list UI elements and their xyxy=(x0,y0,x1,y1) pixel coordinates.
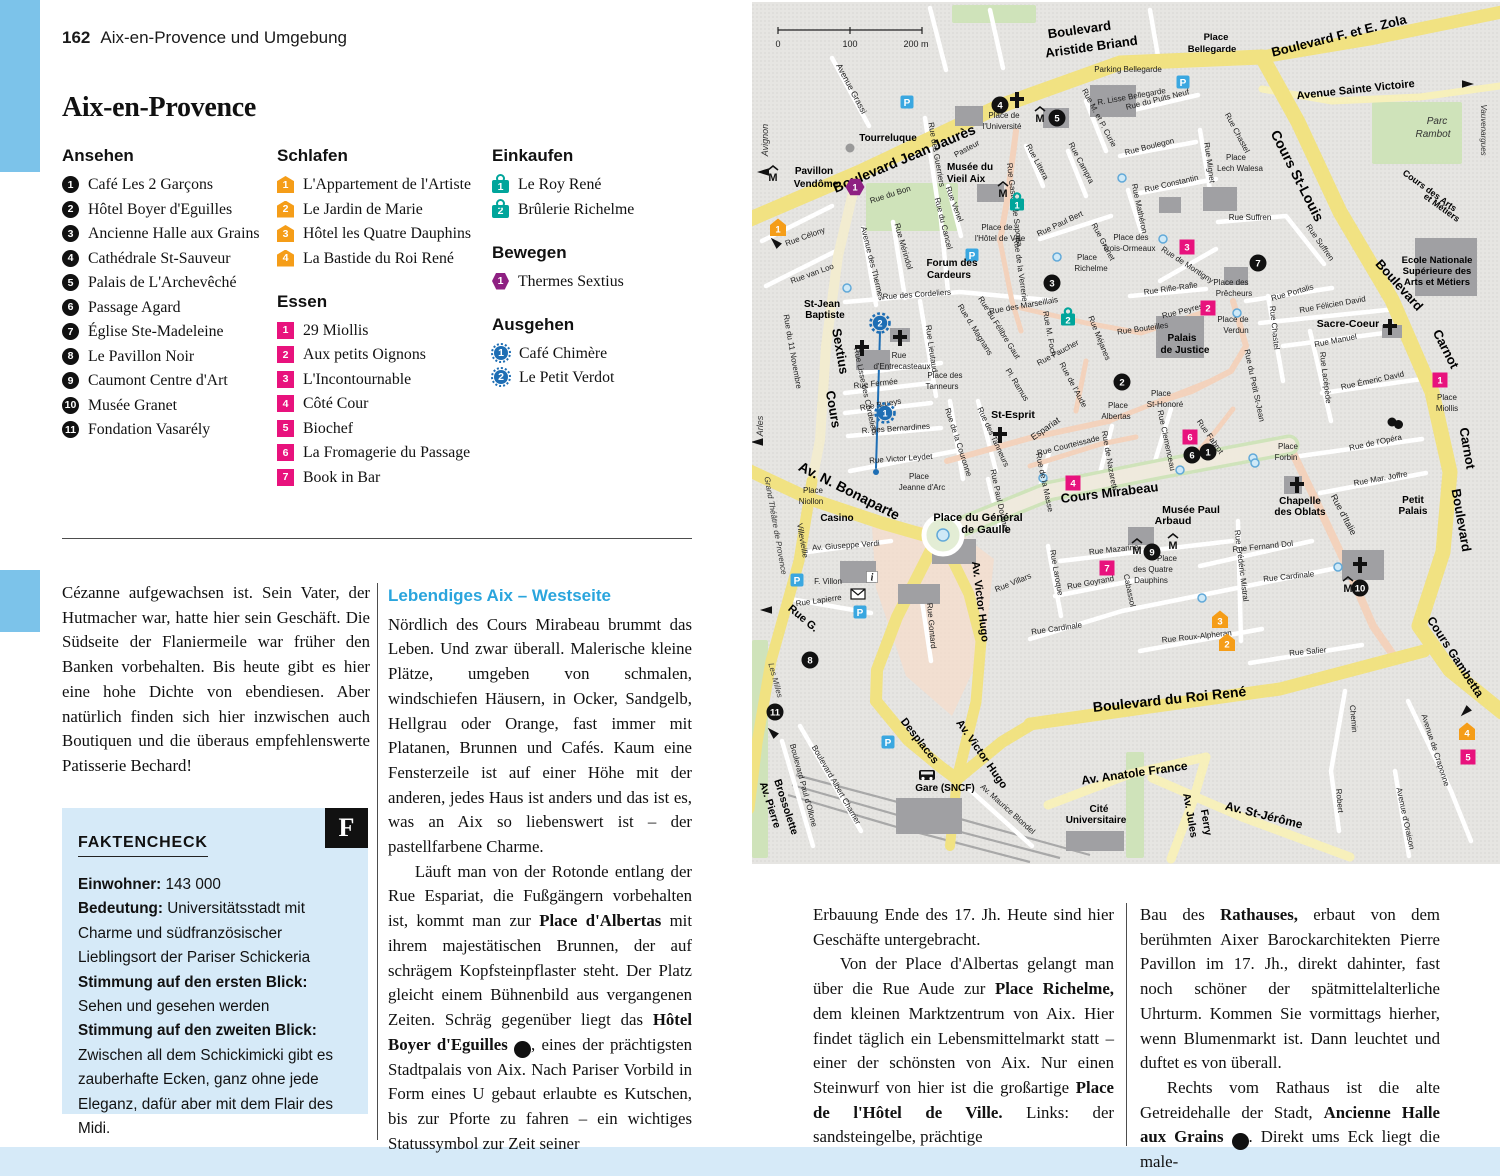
divider-vertical-2 xyxy=(1126,903,1127,1146)
legend-label: L'Incontournable xyxy=(303,370,411,389)
legend-label: Aux petits Oignons xyxy=(303,345,426,364)
legend-marker-sight-11: 11 xyxy=(62,421,79,438)
page-header-title: Aix-en-Provence und Umgebung xyxy=(100,28,347,47)
map-marker-sight-11: 11 xyxy=(767,704,784,721)
legend-marker-sight-6: 6 xyxy=(62,299,79,316)
map-marker-food-6: 6 xyxy=(1183,430,1198,445)
legend-marker-food-3: 3 xyxy=(277,371,294,388)
map-street-label: Place xyxy=(1226,153,1247,162)
legend-heading-essen: Essen xyxy=(277,292,487,312)
legend-label: Café Chimère xyxy=(519,344,607,363)
map-street-label: St-Esprit xyxy=(991,409,1035,421)
legend-marker-sight-1: 1 xyxy=(62,176,79,193)
svg-text:M: M xyxy=(998,188,1007,200)
svg-text:7: 7 xyxy=(1104,563,1109,574)
svg-text:P: P xyxy=(857,608,864,619)
map-street-label: Jeanne d'Arc xyxy=(899,483,945,492)
legend-label: Café Les 2 Garçons xyxy=(88,175,213,194)
map-marker-sight-3: 3 xyxy=(1044,275,1061,292)
map-street-label: Tourreluque xyxy=(859,133,917,144)
map-street-label: Arles xyxy=(755,415,765,437)
text-column-bottom-right: Bau des Rathauses, erbaut von dem berühm… xyxy=(1140,903,1440,1175)
svg-text:M: M xyxy=(768,172,777,184)
svg-text:3: 3 xyxy=(1184,242,1189,253)
map-dot-icon xyxy=(846,144,855,153)
legend-heading-bewegen: Bewegen xyxy=(492,243,697,263)
legend-label: Biochef xyxy=(303,419,353,438)
map-street-label: Vieil Aix xyxy=(947,174,986,185)
legend-item: 1Thermes Sextius xyxy=(492,272,697,291)
map-street-label: Cité xyxy=(1090,804,1109,815)
map-street-label: Baptiste xyxy=(805,310,845,321)
svg-text:8: 8 xyxy=(807,655,812,666)
legend-item: 1L'Appartement de l'Artiste xyxy=(277,175,487,194)
map-bus-icon xyxy=(919,770,935,780)
svg-text:3: 3 xyxy=(1049,278,1054,289)
legend-marker-food-6: 6 xyxy=(277,444,294,461)
map-marker-food-2: 2 xyxy=(1201,301,1216,316)
legend-label: Hôtel les Quatre Dauphins xyxy=(303,224,471,243)
text-column-left: Cézanne aufgewachsen ist. Sein Vater, de… xyxy=(62,581,370,779)
legend-marker-food-7: 7 xyxy=(277,469,294,486)
legend-marker-hotel-2: 2 xyxy=(277,201,294,218)
legend-item: 1Le Roy René xyxy=(492,175,697,194)
map-marker-food-3: 3 xyxy=(1180,240,1195,255)
city-map-svg: MMMMMMPPPPPPiAvignonAvenue GrassiBouleva… xyxy=(752,2,1500,864)
map-street-label: Rue Suffren xyxy=(1229,213,1272,222)
legend-heading-schlafen: Schlafen xyxy=(277,146,487,166)
map-street-label: Rambot xyxy=(1415,129,1451,140)
map-info-icon: i xyxy=(867,572,878,584)
map-dotblue-icon xyxy=(873,469,879,475)
map-marker-sight-2: 2 xyxy=(1114,374,1131,391)
map-marker-sight-7: 7 xyxy=(1250,255,1267,272)
map-street-label: Lech Walesa xyxy=(1217,164,1264,173)
map-street-label: Niollon xyxy=(799,497,823,506)
paragraph: Erbauung Ende des 17. Jh. Heute sind hie… xyxy=(813,903,1114,952)
map-P-icon: P xyxy=(901,96,914,109)
svg-text:M: M xyxy=(1035,113,1044,125)
svg-text:1: 1 xyxy=(1205,447,1211,458)
svg-text:6: 6 xyxy=(1189,450,1194,461)
map-street-label: d'Entrecasteaux xyxy=(873,362,930,371)
map-street-label: Place xyxy=(1278,442,1299,451)
paragraph: Nördlich des Cours Mirabeau brummt das L… xyxy=(388,613,692,860)
map-street-label: Universitaire xyxy=(1066,815,1127,826)
legend-label: Le Pavillon Noir xyxy=(88,347,194,366)
legend-marker-sight-3: 3 xyxy=(62,225,79,242)
svg-text:1: 1 xyxy=(852,182,858,193)
legend-marker-sight-4: 4 xyxy=(62,250,79,267)
legend-marker-sight-2: 2 xyxy=(62,201,79,218)
map-marker-sight-8: 8 xyxy=(802,652,819,669)
map-street-label: Place xyxy=(803,486,824,495)
legend-label: Cathédrale St-Sauveur xyxy=(88,249,231,268)
map-street-label: Supérieure des xyxy=(1403,266,1472,277)
map-P-icon: P xyxy=(791,574,804,587)
map-street-label: Sacre-Coeur xyxy=(1317,318,1379,330)
map-street-label: Tanneurs xyxy=(926,382,959,391)
map-street-label: Palais xyxy=(1168,333,1197,344)
legend-item: 5Biochef xyxy=(277,419,487,438)
legend-label: 29 Miollis xyxy=(303,321,368,340)
map-marker-food-5: 5 xyxy=(1461,750,1476,765)
map-street-label: Place xyxy=(1437,393,1458,402)
margin-strip-top xyxy=(0,0,40,172)
map-street-label: Prêcheurs xyxy=(1216,289,1252,298)
paragraph: Rechts vom Rathaus ist die alte Getreide… xyxy=(1140,1076,1440,1175)
legend-item: 5Palais de L'Archevêché xyxy=(62,273,270,292)
map-marker-food-1: 1 xyxy=(1433,373,1448,388)
svg-text:i: i xyxy=(871,573,874,584)
legend-label: La Fromagerie du Passage xyxy=(303,443,470,462)
faktencheck-box: F FAKTENCHECK Einwohner: 143 000 Bedeutu… xyxy=(62,808,368,1114)
legend-marker-food-5: 5 xyxy=(277,420,294,437)
legend-item: 7Book in Bar xyxy=(277,468,487,487)
svg-text:4: 4 xyxy=(997,100,1003,111)
legend-label: Fondation Vasarély xyxy=(88,420,210,439)
map-street-label: Place de xyxy=(988,111,1020,120)
legend-label: Côté Cour xyxy=(303,394,368,413)
map-street-label: Forum des xyxy=(926,258,978,269)
map-street-label: St-Jean xyxy=(804,299,840,310)
map-street-label: Place xyxy=(1204,32,1229,43)
legend-marker-shop-2: 2 xyxy=(492,205,509,218)
map-street-label: Ecole Nationale xyxy=(1402,255,1473,266)
map-street-label: Albertas xyxy=(1101,412,1130,421)
map-street-label: Rue xyxy=(892,351,907,360)
legend-item: 6Passage Agard xyxy=(62,298,270,317)
legend-marker-hotel-1: 1 xyxy=(277,176,294,193)
legend-label: Book in Bar xyxy=(303,468,380,487)
map-street-label: Richelme xyxy=(1074,264,1108,273)
map-marker-sight-4: 4 xyxy=(992,97,1009,114)
legend-label: L'Appartement de l'Artiste xyxy=(303,175,471,194)
map-marker-sight-10: 10 xyxy=(1352,580,1369,597)
legend-item: 4Côté Cour xyxy=(277,394,487,413)
legend-marker-sight-10: 10 xyxy=(62,397,79,414)
map-street-label: Place xyxy=(1077,253,1098,262)
legend-item: 3Ancienne Halle aux Grains xyxy=(62,224,270,243)
map-P-icon: P xyxy=(854,606,867,619)
legend-label: Brûlerie Richelme xyxy=(518,200,634,219)
paragraph: Bau des Rathauses, erbaut von dem berühm… xyxy=(1140,903,1440,1076)
legend-marker-food-4: 4 xyxy=(277,395,294,412)
legend-marker-go-2: 2 xyxy=(494,370,508,384)
legend: Ansehen1Café Les 2 Garçons2Hôtel Boyer d… xyxy=(62,146,707,536)
map-P-icon: P xyxy=(882,736,895,749)
legend-heading-ausgehen: Ausgehen xyxy=(492,315,697,335)
legend-item: 2Brûlerie Richelme xyxy=(492,200,697,219)
paragraph: Cézanne aufgewachsen ist. Sein Vater, de… xyxy=(62,581,370,779)
map-marker-sight-1: 1 xyxy=(1200,444,1217,461)
svg-text:1: 1 xyxy=(1014,200,1020,211)
svg-text:1: 1 xyxy=(882,408,887,418)
svg-text:11: 11 xyxy=(770,707,781,718)
svg-text:200 m: 200 m xyxy=(903,39,928,49)
map-street-label: Miollis xyxy=(1436,404,1458,413)
divider-horizontal xyxy=(62,538,692,539)
map-street-label: Place de xyxy=(981,223,1013,232)
legend-item: 2Le Petit Verdot xyxy=(492,368,697,387)
legend-marker-go-1: 1 xyxy=(494,346,508,360)
map-street-label: St-Honoré xyxy=(1147,400,1184,409)
legend-column-1: Schlafen1L'Appartement de l'Artiste2Le J… xyxy=(277,146,487,492)
svg-text:100: 100 xyxy=(842,39,857,49)
map-street-label: de Justice xyxy=(1161,345,1210,356)
guidebook-page: 162Aix-en-Provence und Umgebung Aix-en-P… xyxy=(0,0,1500,1176)
map-street-label: Musée du xyxy=(947,162,993,173)
page-header: 162Aix-en-Provence und Umgebung xyxy=(62,28,347,48)
paragraph: Von der Place d'Albertas gelangt man übe… xyxy=(813,952,1114,1150)
svg-text:2: 2 xyxy=(1065,315,1070,326)
map-street-label: Place xyxy=(1157,554,1178,563)
legend-label: La Bastide du Roi René xyxy=(303,249,454,268)
svg-text:2: 2 xyxy=(1205,303,1210,314)
map-street-label: Trois-Ormeaux xyxy=(1102,244,1155,253)
map-street-label: Verdun xyxy=(1223,326,1248,335)
chapter-tab: F xyxy=(325,808,368,848)
svg-text:2: 2 xyxy=(1119,377,1124,388)
map-street-label: Chapelle xyxy=(1279,496,1321,507)
margin-strip-mid xyxy=(0,570,40,632)
svg-text:2: 2 xyxy=(877,318,882,328)
map-street-label: Dauphins xyxy=(1134,576,1168,585)
svg-text:4: 4 xyxy=(1464,728,1470,739)
legend-label: Le Jardin de Marie xyxy=(303,200,423,219)
section-heading: Lebendiges Aix – Westseite xyxy=(388,584,692,609)
svg-text:1: 1 xyxy=(1437,375,1443,386)
map-marker-sight-9: 9 xyxy=(1144,544,1161,561)
map-marker-sight-5: 5 xyxy=(1049,110,1066,127)
text-column-middle: Lebendiges Aix – Westseite Nördlich des … xyxy=(388,584,692,1156)
map-street-label: l'Université xyxy=(983,122,1022,131)
city-map: MMMMMMPPPPPPiAvignonAvenue GrassiBouleva… xyxy=(752,2,1500,864)
legend-marker-sight-7: 7 xyxy=(62,323,79,340)
map-marker-food-4: 4 xyxy=(1066,476,1081,491)
map-street-label: Vendôme xyxy=(794,179,839,190)
map-street-label: Arts et Métiers xyxy=(1404,277,1470,288)
svg-text:P: P xyxy=(904,98,911,109)
legend-marker-sight-5: 5 xyxy=(62,274,79,291)
legend-label: Ancienne Halle aux Grains xyxy=(88,224,260,243)
legend-marker-hotel-3: 3 xyxy=(277,225,294,242)
legend-item: 7Église Ste-Madeleine xyxy=(62,322,270,341)
map-street-label: Casino xyxy=(820,513,853,524)
map-street-label: des Quatre xyxy=(1133,565,1173,574)
page-title: Aix-en-Provence xyxy=(62,92,256,124)
svg-text:9: 9 xyxy=(1149,547,1154,558)
legend-item: 129 Miollis xyxy=(277,321,487,340)
map-street-label: Avignon xyxy=(760,124,770,157)
legend-column-0: Ansehen1Café Les 2 Garçons2Hôtel Boyer d… xyxy=(62,146,270,445)
legend-label: Thermes Sextius xyxy=(518,272,624,291)
legend-marker-sight-9: 9 xyxy=(62,372,79,389)
inline-marker: 3 xyxy=(1232,1133,1249,1150)
legend-label: Église Ste-Madeleine xyxy=(88,322,224,341)
map-mail-icon xyxy=(851,589,865,599)
svg-text:4: 4 xyxy=(1070,478,1076,489)
legend-label: Le Petit Verdot xyxy=(519,368,614,387)
legend-item: 4Cathédrale St-Sauveur xyxy=(62,249,270,268)
legend-marker-shop-1: 1 xyxy=(492,180,509,193)
map-street-label: Place xyxy=(909,472,930,481)
page-number: 162 xyxy=(62,28,90,47)
map-street-label: F. Villon xyxy=(814,577,842,586)
legend-label: Hôtel Boyer d'Eguilles xyxy=(88,200,232,219)
legend-marker-sight-8: 8 xyxy=(62,348,79,365)
map-street-label: Palais xyxy=(1399,506,1428,517)
svg-text:1: 1 xyxy=(775,224,781,235)
map-street-label: Pavillon xyxy=(795,166,833,177)
fact-line: Stimmung auf den zweiten Blick: Zwischen… xyxy=(78,1019,352,1141)
map-street-label: Parking Bellegarde xyxy=(1094,65,1162,74)
svg-text:M: M xyxy=(1168,540,1177,552)
map-street-label: Gare (SNCF) xyxy=(915,783,974,794)
legend-item: 3Hôtel les Quatre Dauphins xyxy=(277,224,487,243)
svg-text:10: 10 xyxy=(1355,583,1366,594)
map-street-label: Place de xyxy=(1217,315,1249,324)
map-street-label: Bellegarde xyxy=(1188,44,1237,55)
legend-heading-einkaufen: Einkaufen xyxy=(492,146,697,166)
legend-label: Musée Granet xyxy=(88,396,177,415)
legend-item: 4La Bastide du Roi René xyxy=(277,249,487,268)
map-marker-sight-6: 6 xyxy=(1184,447,1201,464)
legend-item: 2Aux petits Oignons xyxy=(277,345,487,364)
map-street-label: des Oblats xyxy=(1274,507,1326,518)
map-street-label: Arbaud xyxy=(1155,515,1192,527)
legend-label: Le Roy René xyxy=(518,175,601,194)
svg-text:7: 7 xyxy=(1255,258,1260,269)
svg-text:M: M xyxy=(1343,583,1352,595)
legend-label: Palais de L'Archevêché xyxy=(88,273,236,292)
svg-text:5: 5 xyxy=(1054,113,1060,124)
svg-text:6: 6 xyxy=(1187,432,1192,443)
legend-heading-ansehen: Ansehen xyxy=(62,146,270,166)
fact-line: Einwohner: 143 000 xyxy=(78,873,352,897)
legend-marker-hotel-4: 4 xyxy=(277,250,294,267)
legend-item: 10Musée Granet xyxy=(62,396,270,415)
legend-marker-move-1: 1 xyxy=(492,273,509,290)
legend-item: 9Caumont Centre d'Art xyxy=(62,371,270,390)
map-street-label: Place xyxy=(1151,389,1172,398)
fact-line: Bedeutung: Universitätsstadt mit Charme … xyxy=(78,897,352,970)
faktencheck-title: FAKTENCHECK xyxy=(78,834,208,857)
map-street-label: Cardeurs xyxy=(927,270,971,281)
inline-marker: 2 xyxy=(514,1041,531,1058)
svg-text:3: 3 xyxy=(1217,616,1222,627)
legend-column-2: Einkaufen1Le Roy René2Brûlerie RichelmeB… xyxy=(492,146,697,393)
map-street-label: Vauvenargues xyxy=(1479,104,1488,155)
map-street-label: Forbin xyxy=(1275,453,1298,462)
divider-vertical-1 xyxy=(377,583,378,1140)
paragraph: Läuft man von der Rotonde entlang der Ru… xyxy=(388,860,692,1157)
svg-text:5: 5 xyxy=(1465,752,1471,763)
legend-item: 1Café Chimère xyxy=(492,344,697,363)
legend-marker-food-1: 1 xyxy=(277,322,294,339)
legend-item: 6La Fromagerie du Passage xyxy=(277,443,487,462)
map-street-label: Petit xyxy=(1402,495,1424,506)
legend-label: Passage Agard xyxy=(88,298,181,317)
legend-item: 2Hôtel Boyer d'Eguilles xyxy=(62,200,270,219)
legend-item: 1Café Les 2 Garçons xyxy=(62,175,270,194)
legend-item: 11Fondation Vasarély xyxy=(62,420,270,439)
map-street-label: Place xyxy=(1108,401,1129,410)
map-street-label: Place des xyxy=(1113,233,1148,242)
legend-item: 8Le Pavillon Noir xyxy=(62,347,270,366)
map-street-label: Parc xyxy=(1427,116,1448,127)
svg-text:0: 0 xyxy=(775,39,780,49)
legend-item: 2Le Jardin de Marie xyxy=(277,200,487,219)
text-column-bottom-left: Erbauung Ende des 17. Jh. Heute sind hie… xyxy=(813,903,1114,1150)
legend-marker-food-2: 2 xyxy=(277,346,294,363)
legend-label: Caumont Centre d'Art xyxy=(88,371,228,390)
legend-item: 3L'Incontournable xyxy=(277,370,487,389)
svg-text:P: P xyxy=(794,576,801,587)
map-marker-food-7: 7 xyxy=(1100,561,1115,576)
svg-text:2: 2 xyxy=(1224,639,1229,650)
svg-text:P: P xyxy=(885,738,892,749)
map-street-label: Place des xyxy=(1213,278,1248,287)
fact-line: Stimmung auf den ersten Blick: Sehen und… xyxy=(78,971,352,1020)
